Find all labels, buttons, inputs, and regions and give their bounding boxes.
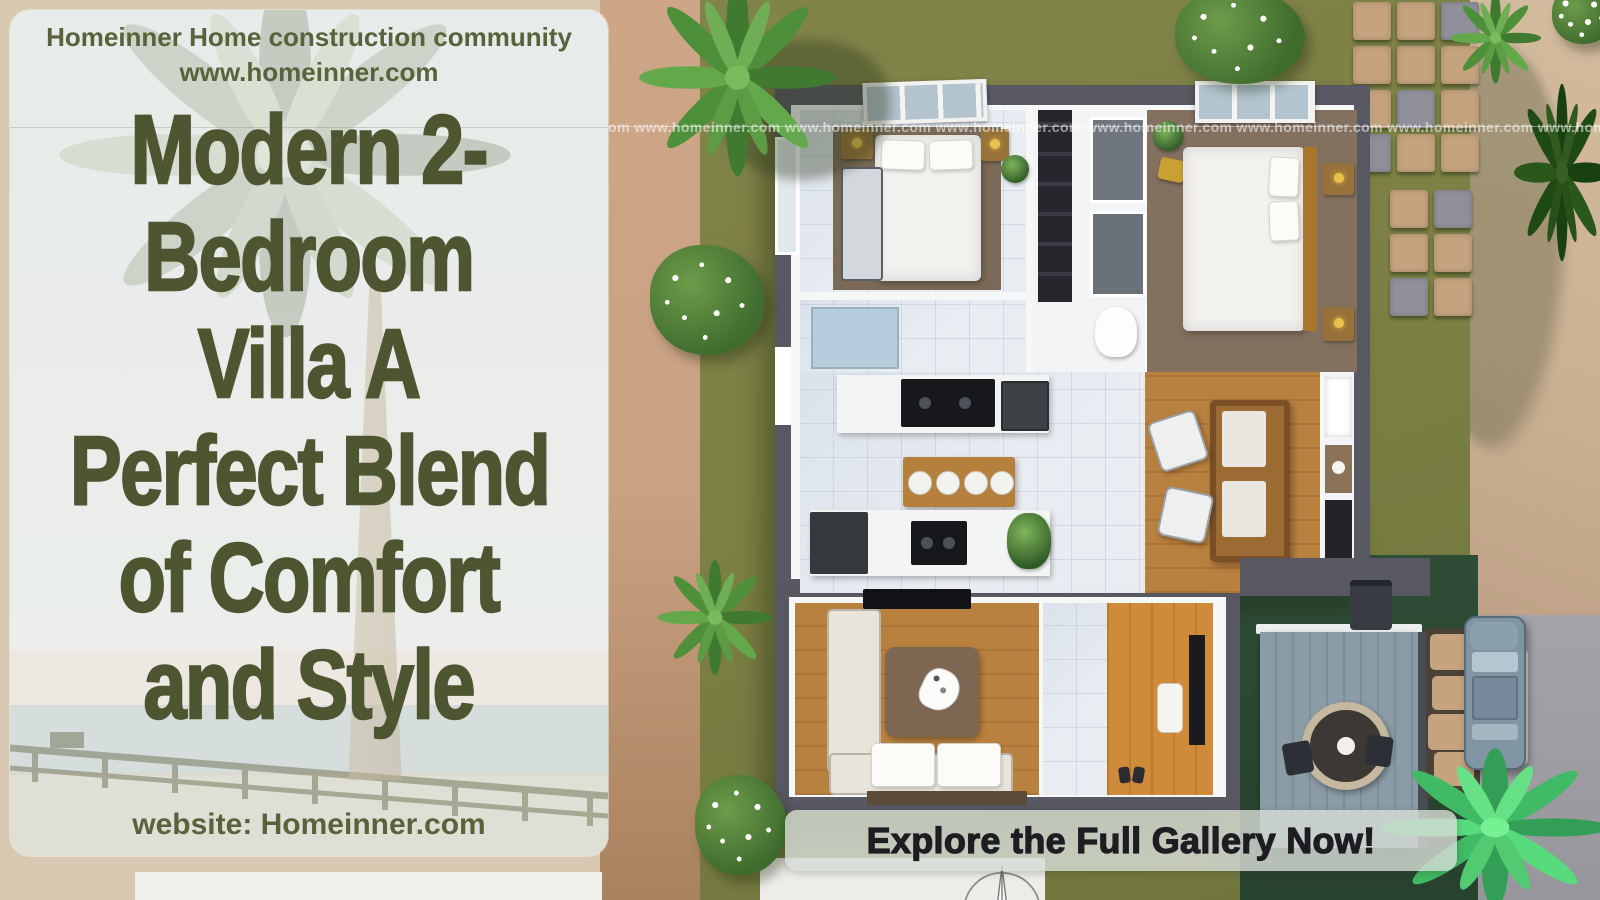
pillow [880, 139, 925, 171]
burner [959, 397, 971, 409]
burner [943, 537, 955, 549]
car-rear-window [1472, 724, 1518, 740]
car-windshield [1472, 652, 1518, 672]
seat-cushion [937, 743, 1001, 787]
paver-tile [1390, 234, 1428, 272]
paver-tile [1434, 278, 1472, 316]
paver-tile [1397, 134, 1435, 172]
glass-shower [811, 307, 899, 369]
burner [919, 397, 931, 409]
oven [1001, 381, 1049, 431]
explore-gallery-button[interactable]: Explore the Full Gallery Now! [785, 810, 1457, 871]
fire-pit-center [1337, 737, 1355, 755]
armchair [1156, 485, 1214, 544]
kitchen-island [903, 457, 1015, 507]
paver-tile [1397, 2, 1435, 40]
island-plate [990, 471, 1014, 495]
dryer-unit [1090, 211, 1146, 297]
bottom-strip [135, 872, 602, 900]
garden-wall [1240, 558, 1430, 596]
bed-headboard [1303, 147, 1317, 331]
headline-line: and Style [10, 631, 608, 738]
paver-tile [1353, 46, 1391, 84]
paver-tile [1397, 46, 1435, 84]
sink [1332, 461, 1345, 474]
cooktop [901, 379, 995, 427]
main-headline: Modern 2- Bedroom Villa A Perfect Blend … [10, 96, 608, 738]
door-mat [867, 791, 1027, 805]
palm-tree [630, 0, 845, 180]
pillow [1268, 200, 1300, 242]
watermark-text: com www.homeinner.com www.homeinner.com … [600, 119, 1600, 135]
headline-line: Villa A [10, 310, 608, 417]
pillow [928, 139, 973, 171]
bathroom-nook [1325, 445, 1352, 493]
burner [921, 537, 933, 549]
car-hood [1470, 622, 1518, 650]
window-sill [775, 347, 791, 425]
potted-plant [1007, 513, 1051, 569]
tv [863, 589, 971, 609]
house-floorplan [775, 85, 1370, 595]
sofa [1210, 400, 1290, 562]
decor-dot [939, 686, 947, 694]
pillow [1268, 156, 1300, 198]
grill [1350, 580, 1392, 630]
island-plate [908, 471, 932, 495]
website-label: website: Homeinner.com [10, 808, 608, 842]
promo-banner: com www.homeinner.com www.homeinner.com … [0, 0, 1600, 900]
palm-plant [655, 550, 775, 685]
sofa-cushion [1222, 411, 1266, 467]
refrigerator [810, 512, 868, 574]
deck-chair [1281, 740, 1314, 776]
villa-aerial-render: com www.homeinner.com www.homeinner.com … [600, 0, 1600, 900]
sofa-cushion [1222, 481, 1266, 537]
headline-line: Modern 2- [10, 96, 608, 203]
paver-tile [1390, 190, 1428, 228]
headline-line: Bedroom [10, 203, 608, 310]
seat-cushion [871, 743, 935, 787]
headline-line: Perfect Blend [10, 417, 608, 524]
paver-tile [1390, 278, 1428, 316]
community-heading: Homeinner Home construction community [10, 22, 608, 53]
paver-cluster-lower [1390, 190, 1472, 316]
paver-tile [1353, 2, 1391, 40]
island-plate [964, 471, 988, 495]
shoe [1118, 766, 1131, 783]
car-roof [1472, 676, 1518, 720]
island-plate [936, 471, 960, 495]
nightstand [1323, 307, 1354, 341]
palm-tree-dark [1512, 80, 1600, 265]
headline-card: Homeinner Home construction community ww… [10, 10, 608, 856]
flower-bush [695, 775, 787, 875]
potted-plant [1001, 155, 1029, 183]
flower-bush [650, 245, 765, 355]
chair [1157, 683, 1183, 733]
flower-bush [1175, 0, 1305, 84]
closet [1038, 110, 1072, 302]
entry-tile-floor [1043, 603, 1107, 795]
site-url: www.homeinner.com [10, 57, 608, 88]
headline-line: of Comfort [10, 524, 608, 631]
nightstand [1323, 163, 1354, 195]
bedroom-1-bench [841, 167, 883, 281]
watermark-row: com www.homeinner.com www.homeinner.com … [600, 116, 1600, 138]
toilet [1095, 307, 1137, 357]
paver-tile [1441, 134, 1479, 172]
paver-tile [1434, 190, 1472, 228]
media-shelf [1189, 635, 1205, 745]
vanity [1325, 377, 1352, 437]
decor-dot [933, 674, 941, 682]
house-bottom-wing [775, 595, 1240, 812]
cooktop [911, 521, 967, 565]
explore-gallery-label: Explore the Full Gallery Now! [867, 820, 1376, 862]
paver-tile [1434, 234, 1472, 272]
